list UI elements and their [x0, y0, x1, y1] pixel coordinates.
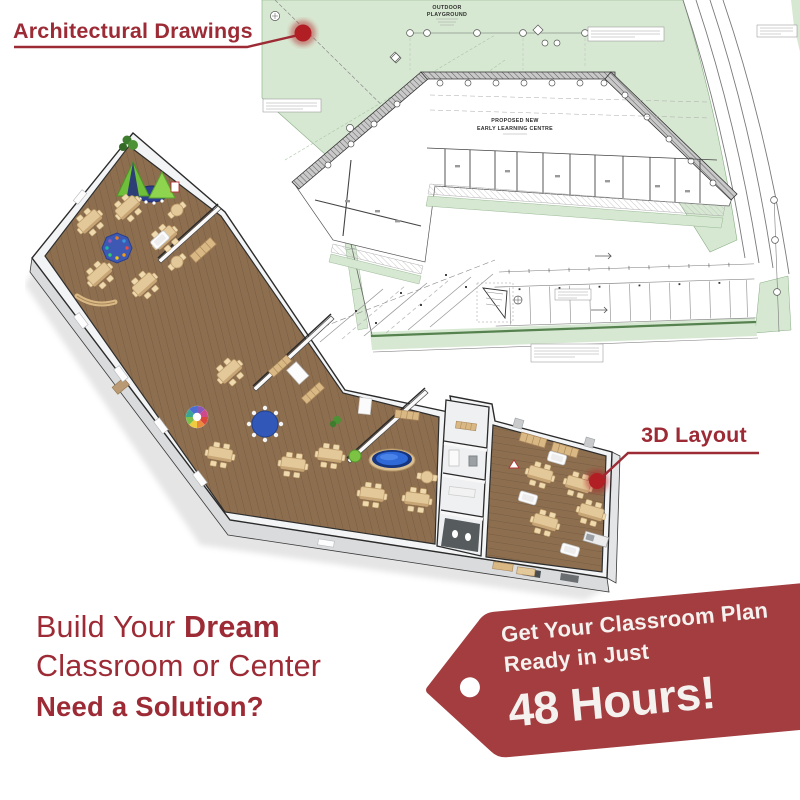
label-box — [588, 27, 664, 41]
offer-tag: Get Your Classroom Plan Ready in Just 48… — [418, 564, 800, 780]
headline-line-3: Need a Solution? — [36, 688, 321, 727]
headline-line-2: Classroom or Center — [36, 647, 321, 686]
3d-layout-svg — [25, 120, 625, 620]
headline-line1-emphasis: Dream — [184, 610, 280, 644]
headline-line1-prefix: Build Your — [36, 610, 184, 644]
ball-pit-highlight — [380, 454, 398, 460]
easel — [171, 182, 179, 192]
label-box — [263, 99, 321, 112]
playground-label-2: PLAYGROUND — [427, 12, 467, 18]
headline: Build Your Dream Classroom or Center Nee… — [36, 608, 321, 727]
corridor-block — [437, 400, 489, 556]
cabinet — [358, 397, 372, 414]
promo-graphic: { "callouts": { "architectural": { "labe… — [0, 0, 800, 800]
label-box — [757, 25, 797, 37]
offer-tag-text: Get Your Classroom Plan Ready in Just 48… — [418, 564, 800, 780]
wall-band — [421, 72, 615, 79]
3d-layout-label: 3D Layout — [628, 423, 760, 448]
3d-layout-figure — [25, 120, 625, 620]
headline-line-1: Build Your Dream — [36, 608, 321, 647]
green-dome-chair — [349, 450, 361, 462]
architectural-drawings-label: Architectural Drawings — [13, 19, 253, 44]
playground-label-1: OUTDOOR — [432, 5, 461, 11]
rainbow-rug — [186, 406, 208, 428]
green-wedge-right — [755, 276, 791, 333]
